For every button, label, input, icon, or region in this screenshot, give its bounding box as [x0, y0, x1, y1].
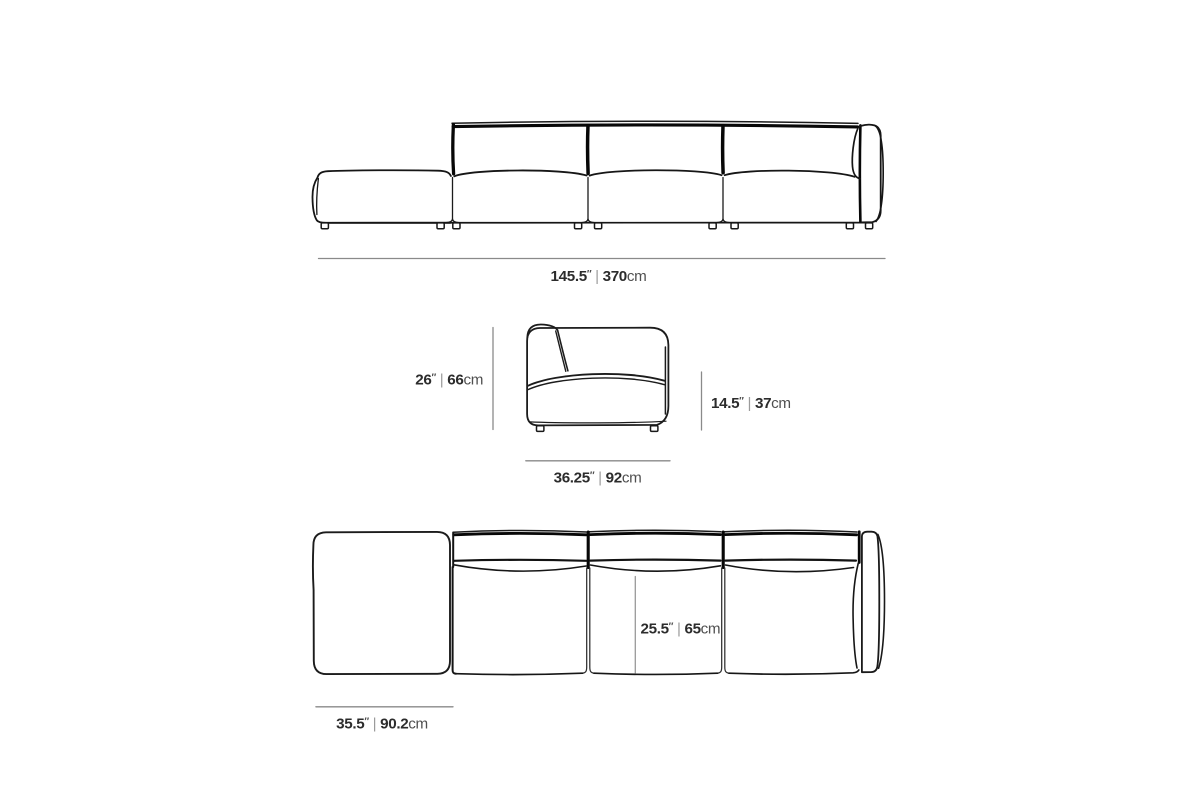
svg-text:36.25″ | 92cm: 36.25″ | 92cm [554, 470, 642, 487]
svg-text:145.5″ | 370cm: 145.5″ | 370cm [551, 268, 647, 285]
svg-text:35.5″ | 90.2cm: 35.5″ | 90.2cm [336, 716, 428, 733]
svg-text:26″ | 66cm: 26″ | 66cm [415, 372, 483, 389]
svg-text:14.5″ | 37cm: 14.5″ | 37cm [711, 395, 791, 412]
svg-text:25.5″ | 65cm: 25.5″ | 65cm [641, 621, 721, 638]
